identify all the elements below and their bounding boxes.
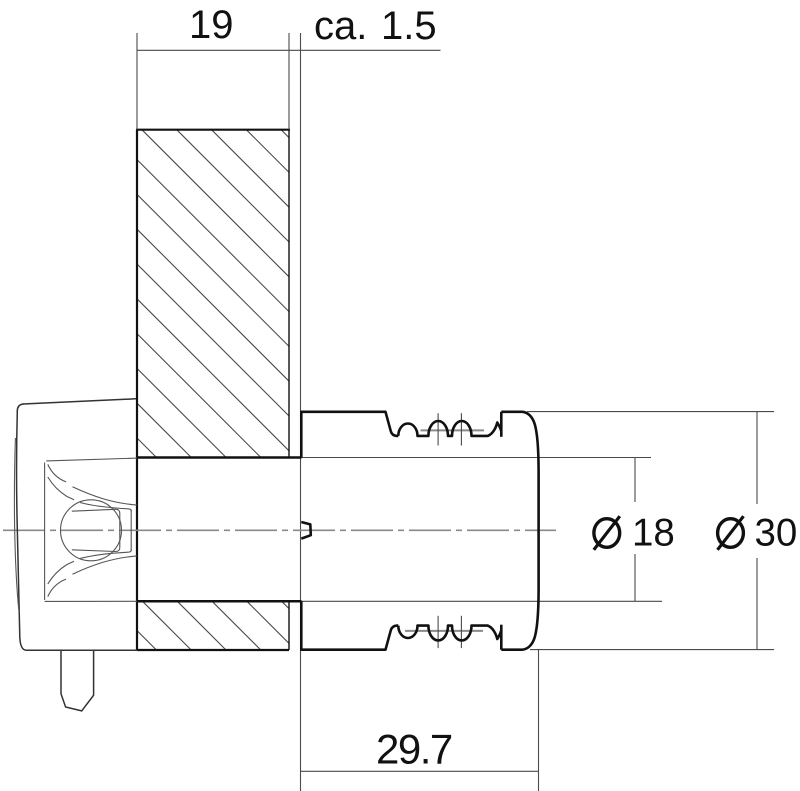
- svg-text:30: 30: [755, 512, 798, 555]
- svg-text:29.7: 29.7: [376, 726, 452, 773]
- svg-text:19: 19: [189, 3, 234, 47]
- svg-text:ca. 1.5: ca. 1.5: [314, 4, 437, 48]
- svg-text:18: 18: [632, 512, 675, 555]
